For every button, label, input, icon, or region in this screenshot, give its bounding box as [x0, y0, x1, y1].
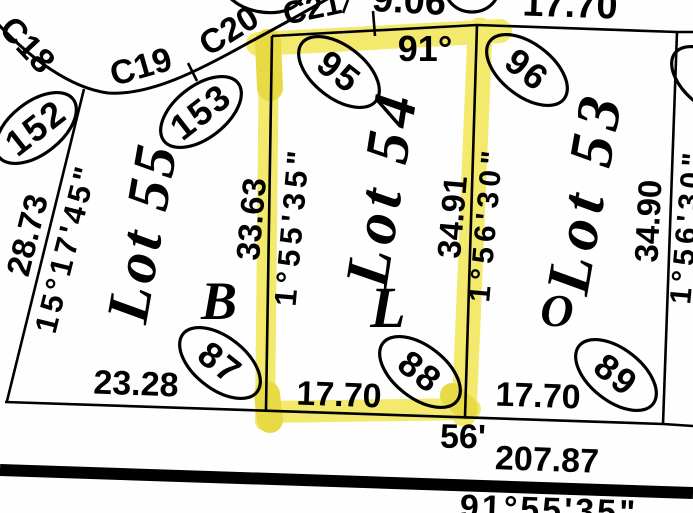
distance-34-90: 34.90 — [629, 179, 666, 263]
distance-23-28: 23.28 — [93, 366, 179, 403]
distance-33-63: 33.63 — [231, 176, 271, 261]
block-letter-o: O — [540, 288, 573, 334]
highlight-dark-corner-top — [268, 42, 270, 88]
curve-tick-c21 — [343, 0, 349, 13]
distance-17-70-top: 17.70 — [522, 0, 618, 26]
block-letter-l: L — [370, 279, 405, 337]
pin-oval-clipped-top-mid — [446, 0, 498, 12]
plat-map: C18 C19 C20 C21 9.06 17.70 91° 28.73 15°… — [0, 0, 693, 513]
distance-17-70-lot53: 17.70 — [495, 378, 581, 415]
distance-9-06: 9.06 — [371, 0, 447, 22]
distance-17-70-lot54: 17.70 — [296, 377, 382, 414]
block-letter-b: B — [201, 274, 237, 328]
distance-34-91: 34.91 — [432, 174, 472, 259]
distance-207-87: 207.87 — [494, 441, 599, 479]
bearing-91-55-35: 91°55'35" — [459, 490, 638, 513]
corner-angle-91: 91° — [398, 31, 452, 67]
road-width-56: 56' — [440, 420, 486, 455]
